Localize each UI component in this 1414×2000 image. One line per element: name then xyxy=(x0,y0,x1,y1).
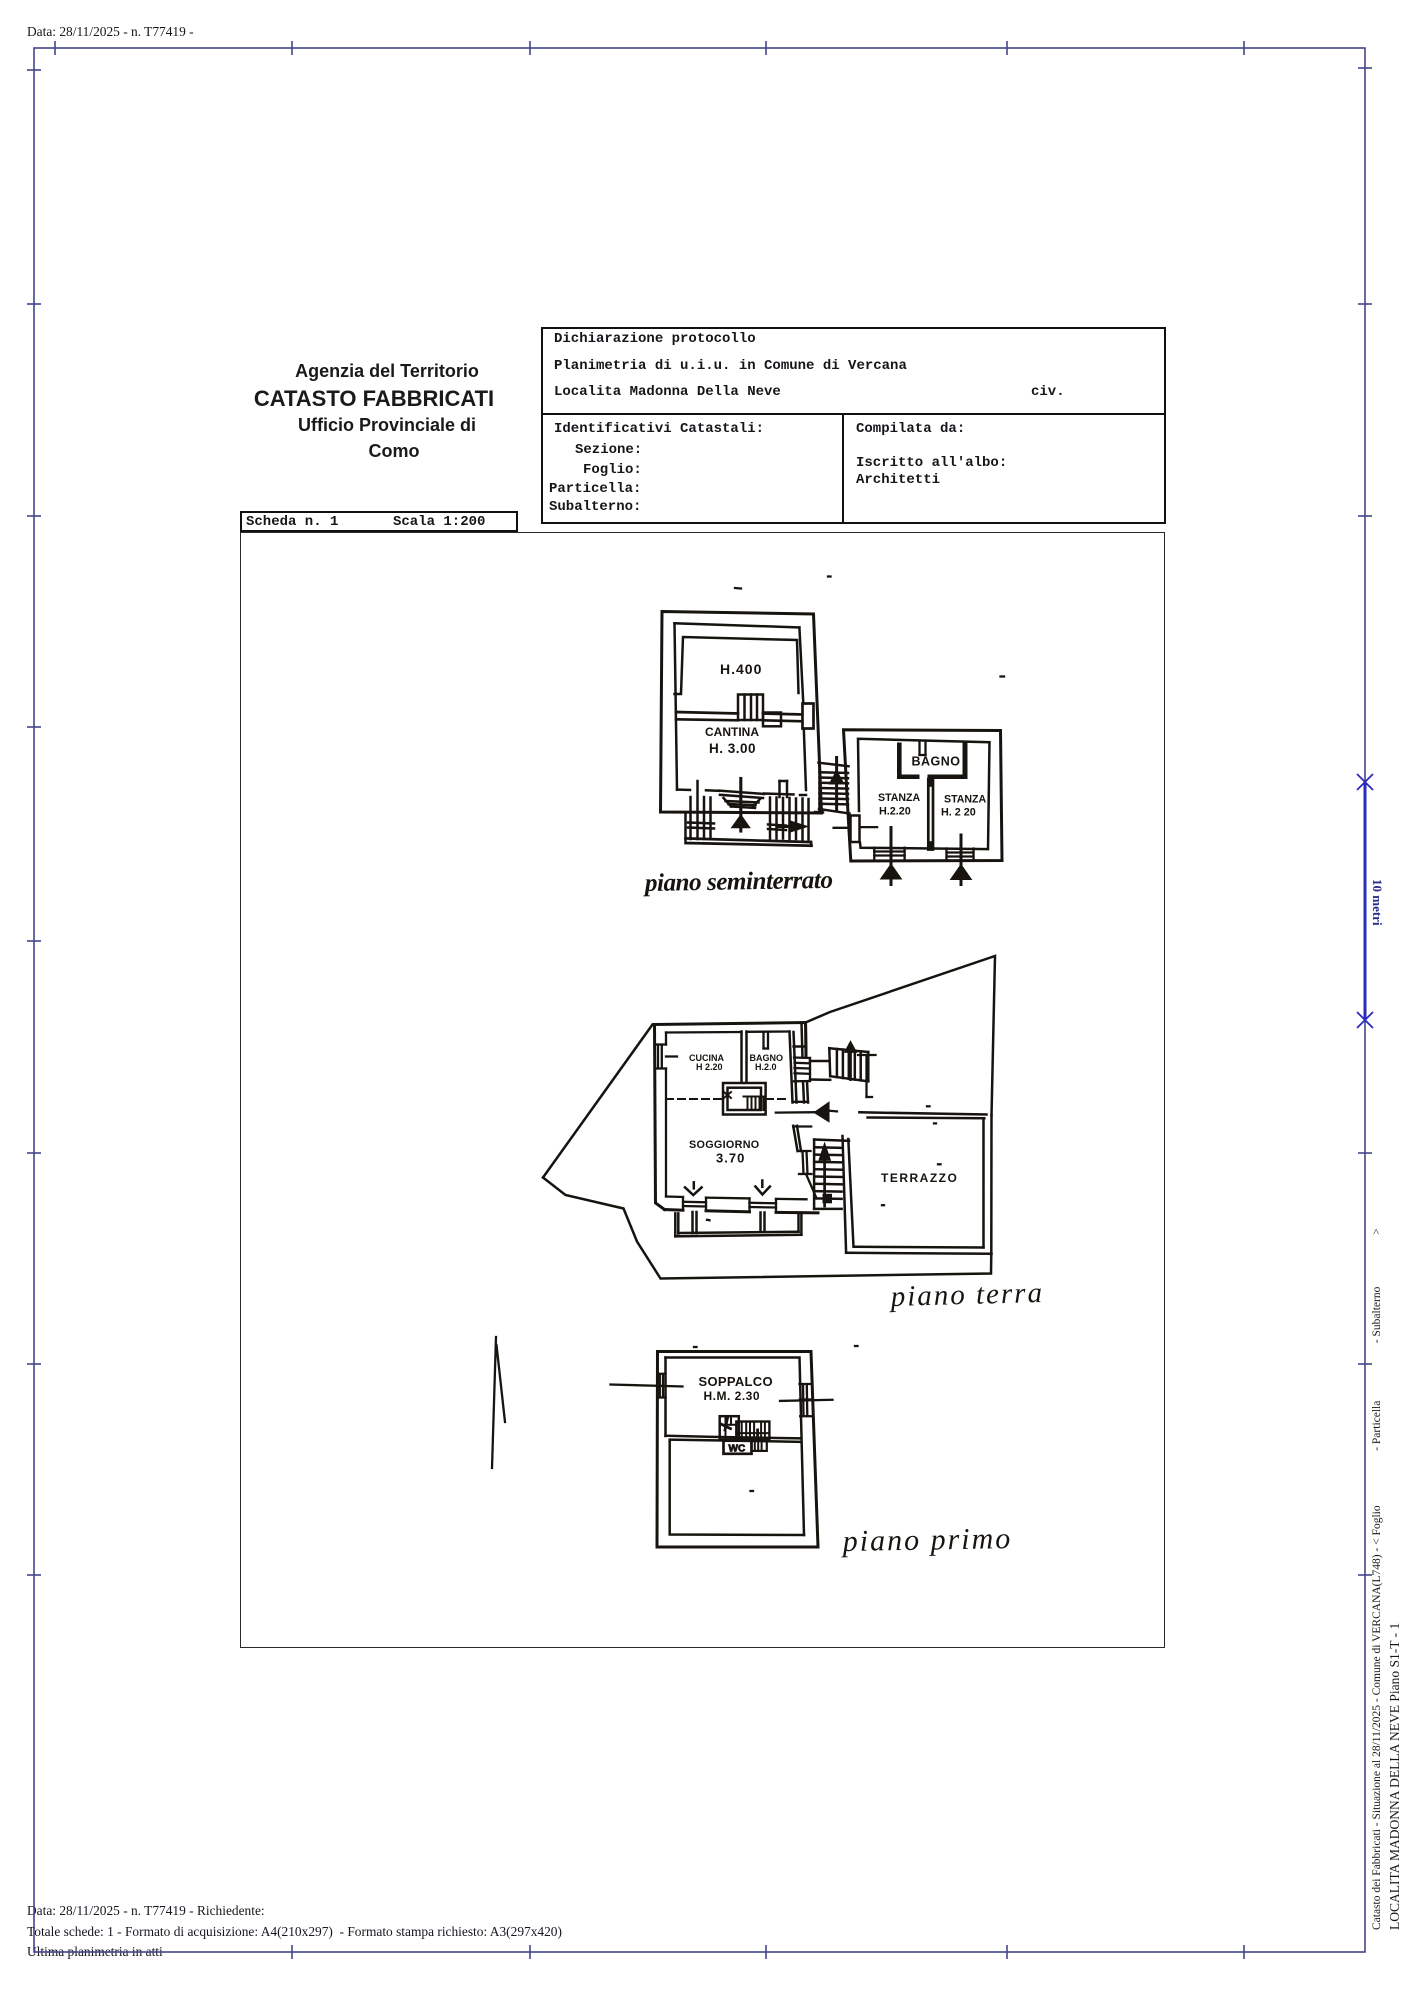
svg-text:SOGGIORNO: SOGGIORNO xyxy=(689,1139,760,1151)
svg-text:H.400: H.400 xyxy=(720,661,762,677)
svg-text:3.70: 3.70 xyxy=(716,1151,745,1166)
svg-text:BAGNO: BAGNO xyxy=(912,755,961,769)
svg-text:SOPPALCO: SOPPALCO xyxy=(699,1374,773,1389)
svg-text:WC: WC xyxy=(729,1444,746,1455)
svg-text:STANZA: STANZA xyxy=(944,794,987,806)
svg-text:H. 2 20: H. 2 20 xyxy=(941,807,976,819)
svg-text:TERRAZZO: TERRAZZO xyxy=(881,1171,958,1185)
svg-text:CANTINA: CANTINA xyxy=(705,725,759,739)
svg-text:piano seminterrato: piano seminterrato xyxy=(643,867,833,897)
svg-text:piano primo: piano primo xyxy=(840,1522,1012,1558)
svg-text:H.2.20: H.2.20 xyxy=(879,806,911,818)
svg-text:H.M. 2.30: H.M. 2.30 xyxy=(704,1389,761,1403)
svg-text:H. 3.00: H. 3.00 xyxy=(709,741,756,756)
svg-text:H 2.20: H 2.20 xyxy=(696,1062,723,1072)
svg-text:STANZA: STANZA xyxy=(878,792,921,804)
svg-text:piano terra: piano terra xyxy=(888,1277,1044,1313)
svg-text:H.2.0: H.2.0 xyxy=(755,1062,777,1072)
